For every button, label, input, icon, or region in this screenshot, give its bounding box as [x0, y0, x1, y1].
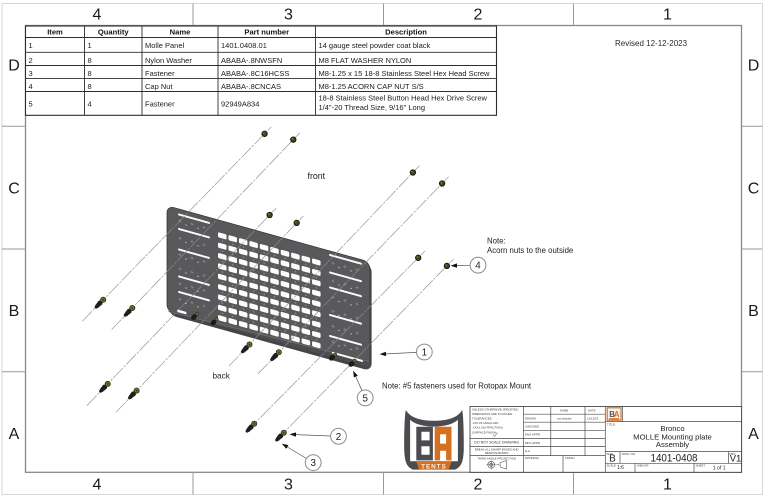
svg-text:Acorn nuts to the outside: Acorn nuts to the outside [487, 246, 573, 255]
svg-text:3: 3 [29, 69, 33, 78]
svg-text:2: 2 [29, 56, 33, 65]
svg-text:1: 1 [29, 41, 33, 50]
svg-text:1/4"-20 Thread Size, 9/16" Lon: 1/4"-20 Thread Size, 9/16" Long [319, 103, 426, 112]
svg-text:4: 4 [93, 7, 102, 24]
svg-text:4: 4 [475, 261, 481, 272]
svg-text:4: 4 [93, 476, 102, 493]
svg-text:Nylon Washer: Nylon Washer [145, 56, 192, 65]
svg-text:1 of 1: 1 of 1 [713, 465, 726, 471]
svg-text:DIMENSIONS ARE IN INCHES: DIMENSIONS ARE IN INCHES [472, 412, 512, 416]
svg-text:8: 8 [88, 69, 92, 78]
svg-text:CHECKED: CHECKED [525, 425, 539, 429]
svg-text:ABABA-.8CNCAS: ABABA-.8CNCAS [221, 82, 281, 91]
svg-text:D: D [748, 58, 760, 75]
svg-text:SHEET: SHEET [696, 464, 706, 468]
svg-text:1: 1 [88, 41, 92, 50]
svg-text:2: 2 [474, 476, 483, 493]
svg-text:Quantity: Quantity [98, 28, 130, 37]
svg-text:2: 2 [474, 7, 483, 24]
svg-text:NAME: NAME [560, 408, 568, 412]
svg-text:A: A [748, 426, 759, 443]
svg-text:ENG APPR.: ENG APPR. [525, 433, 541, 437]
svg-text:M8-1.25 ACORN CAP NUT S/S: M8-1.25 ACORN CAP NUT S/S [319, 82, 424, 91]
svg-text:REMOVE BURRS: REMOVE BURRS [485, 451, 509, 455]
svg-text:Item: Item [47, 28, 63, 37]
svg-text:12/12/23: 12/12/23 [587, 417, 599, 421]
svg-text:DWG. NO.: DWG. NO. [622, 452, 636, 456]
svg-text:Q.A.: Q.A. [525, 449, 531, 453]
svg-text:Molle Panel: Molle Panel [145, 41, 185, 50]
svg-text:1: 1 [663, 476, 672, 493]
svg-text:FINISH: FINISH [565, 456, 574, 460]
svg-text:DO NOT SCALE DRAWING: DO NOT SCALE DRAWING [474, 441, 519, 445]
svg-text:Cap Nut: Cap Nut [145, 82, 173, 91]
svg-text:5: 5 [29, 100, 33, 109]
svg-text:1: 1 [422, 348, 427, 359]
svg-text:C: C [748, 180, 760, 197]
svg-text:18-8 Stainless Steel Button He: 18-8 Stainless Steel Button Head Hex Dri… [319, 94, 488, 103]
svg-text:M8-1.25 x 15 18-8 Stainless St: M8-1.25 x 15 18-8 Stainless Steel Hex He… [319, 69, 491, 78]
svg-text:MFG APPR.: MFG APPR. [525, 441, 541, 445]
svg-text:DRAWN: DRAWN [525, 417, 536, 421]
svg-text:Part number: Part number [244, 28, 289, 37]
svg-text:UNLESS OTHERWISE SPECIFIED:: UNLESS OTHERWISE SPECIFIED: [472, 407, 519, 411]
svg-text:3: 3 [310, 458, 316, 469]
svg-text:Assembly: Assembly [656, 440, 689, 449]
svg-text:3: 3 [284, 7, 293, 24]
svg-text:A: A [614, 410, 620, 419]
svg-text:Description: Description [385, 28, 427, 37]
svg-text:Fastener: Fastener [145, 100, 175, 109]
svg-text:C: C [8, 180, 20, 197]
svg-text:B: B [748, 303, 759, 320]
svg-text:Fastener: Fastener [145, 69, 175, 78]
svg-text:4: 4 [88, 100, 92, 109]
svg-text:front: front [308, 171, 326, 181]
svg-text:1: 1 [663, 7, 672, 24]
svg-text:MATERIAL: MATERIAL [525, 456, 540, 460]
svg-text:B: B [9, 303, 20, 320]
svg-text:THIRD ANGLE PROJECTION: THIRD ANGLE PROJECTION [477, 456, 516, 460]
svg-text:DATE: DATE [588, 408, 596, 412]
svg-text:.XXX±.010 FRACTION±: .XXX±.010 FRACTION± [472, 426, 503, 430]
svg-text:M8 FLAT WASHER NYLON: M8 FLAT WASHER NYLON [319, 56, 412, 65]
svg-text:V1: V1 [730, 453, 742, 464]
svg-text:back: back [213, 372, 231, 381]
svg-text:3: 3 [284, 476, 293, 493]
svg-text:14 gauge steel powder coat bla: 14 gauge steel powder coat black [319, 41, 431, 50]
svg-text:1:6: 1:6 [617, 465, 624, 471]
svg-text:92949A834: 92949A834 [221, 100, 259, 109]
svg-text:Note:: Note: [487, 237, 506, 246]
svg-text:ABABA-.8NWSFN: ABABA-.8NWSFN [221, 56, 282, 65]
svg-text:D: D [8, 58, 20, 75]
svg-text:TITLE:: TITLE: [607, 423, 616, 427]
svg-text:8: 8 [88, 56, 92, 65]
svg-text:cst-shanley: cst-shanley [557, 417, 572, 421]
svg-text:2: 2 [336, 432, 341, 443]
svg-text:TOLERANCES:: TOLERANCES: [472, 417, 493, 421]
svg-text:.XX±.03 ANGULAR±: .XX±.03 ANGULAR± [472, 421, 499, 425]
svg-text:5: 5 [362, 393, 368, 404]
svg-text:4: 4 [29, 82, 33, 91]
svg-text:A: A [9, 426, 20, 443]
svg-text:1401.0408.01: 1401.0408.01 [221, 41, 267, 50]
svg-text:WEIGHT:: WEIGHT: [637, 464, 649, 468]
svg-text:8: 8 [88, 82, 92, 91]
svg-text:ABABA-.8C16HCSS: ABABA-.8C16HCSS [221, 69, 289, 78]
svg-text:Name: Name [170, 28, 191, 37]
svg-text:Note: #5 fasteners used for Ro: Note: #5 fasteners used for Rotopax Moun… [382, 382, 532, 391]
svg-text:TENTS: TENTS [421, 463, 446, 470]
svg-text:SURFACE FINISH:: SURFACE FINISH: [472, 430, 497, 434]
svg-text:SCALE: SCALE [607, 464, 617, 468]
svg-text:Revised 12-12-2023: Revised 12-12-2023 [615, 39, 688, 48]
svg-text:1401-0408: 1401-0408 [651, 453, 698, 465]
